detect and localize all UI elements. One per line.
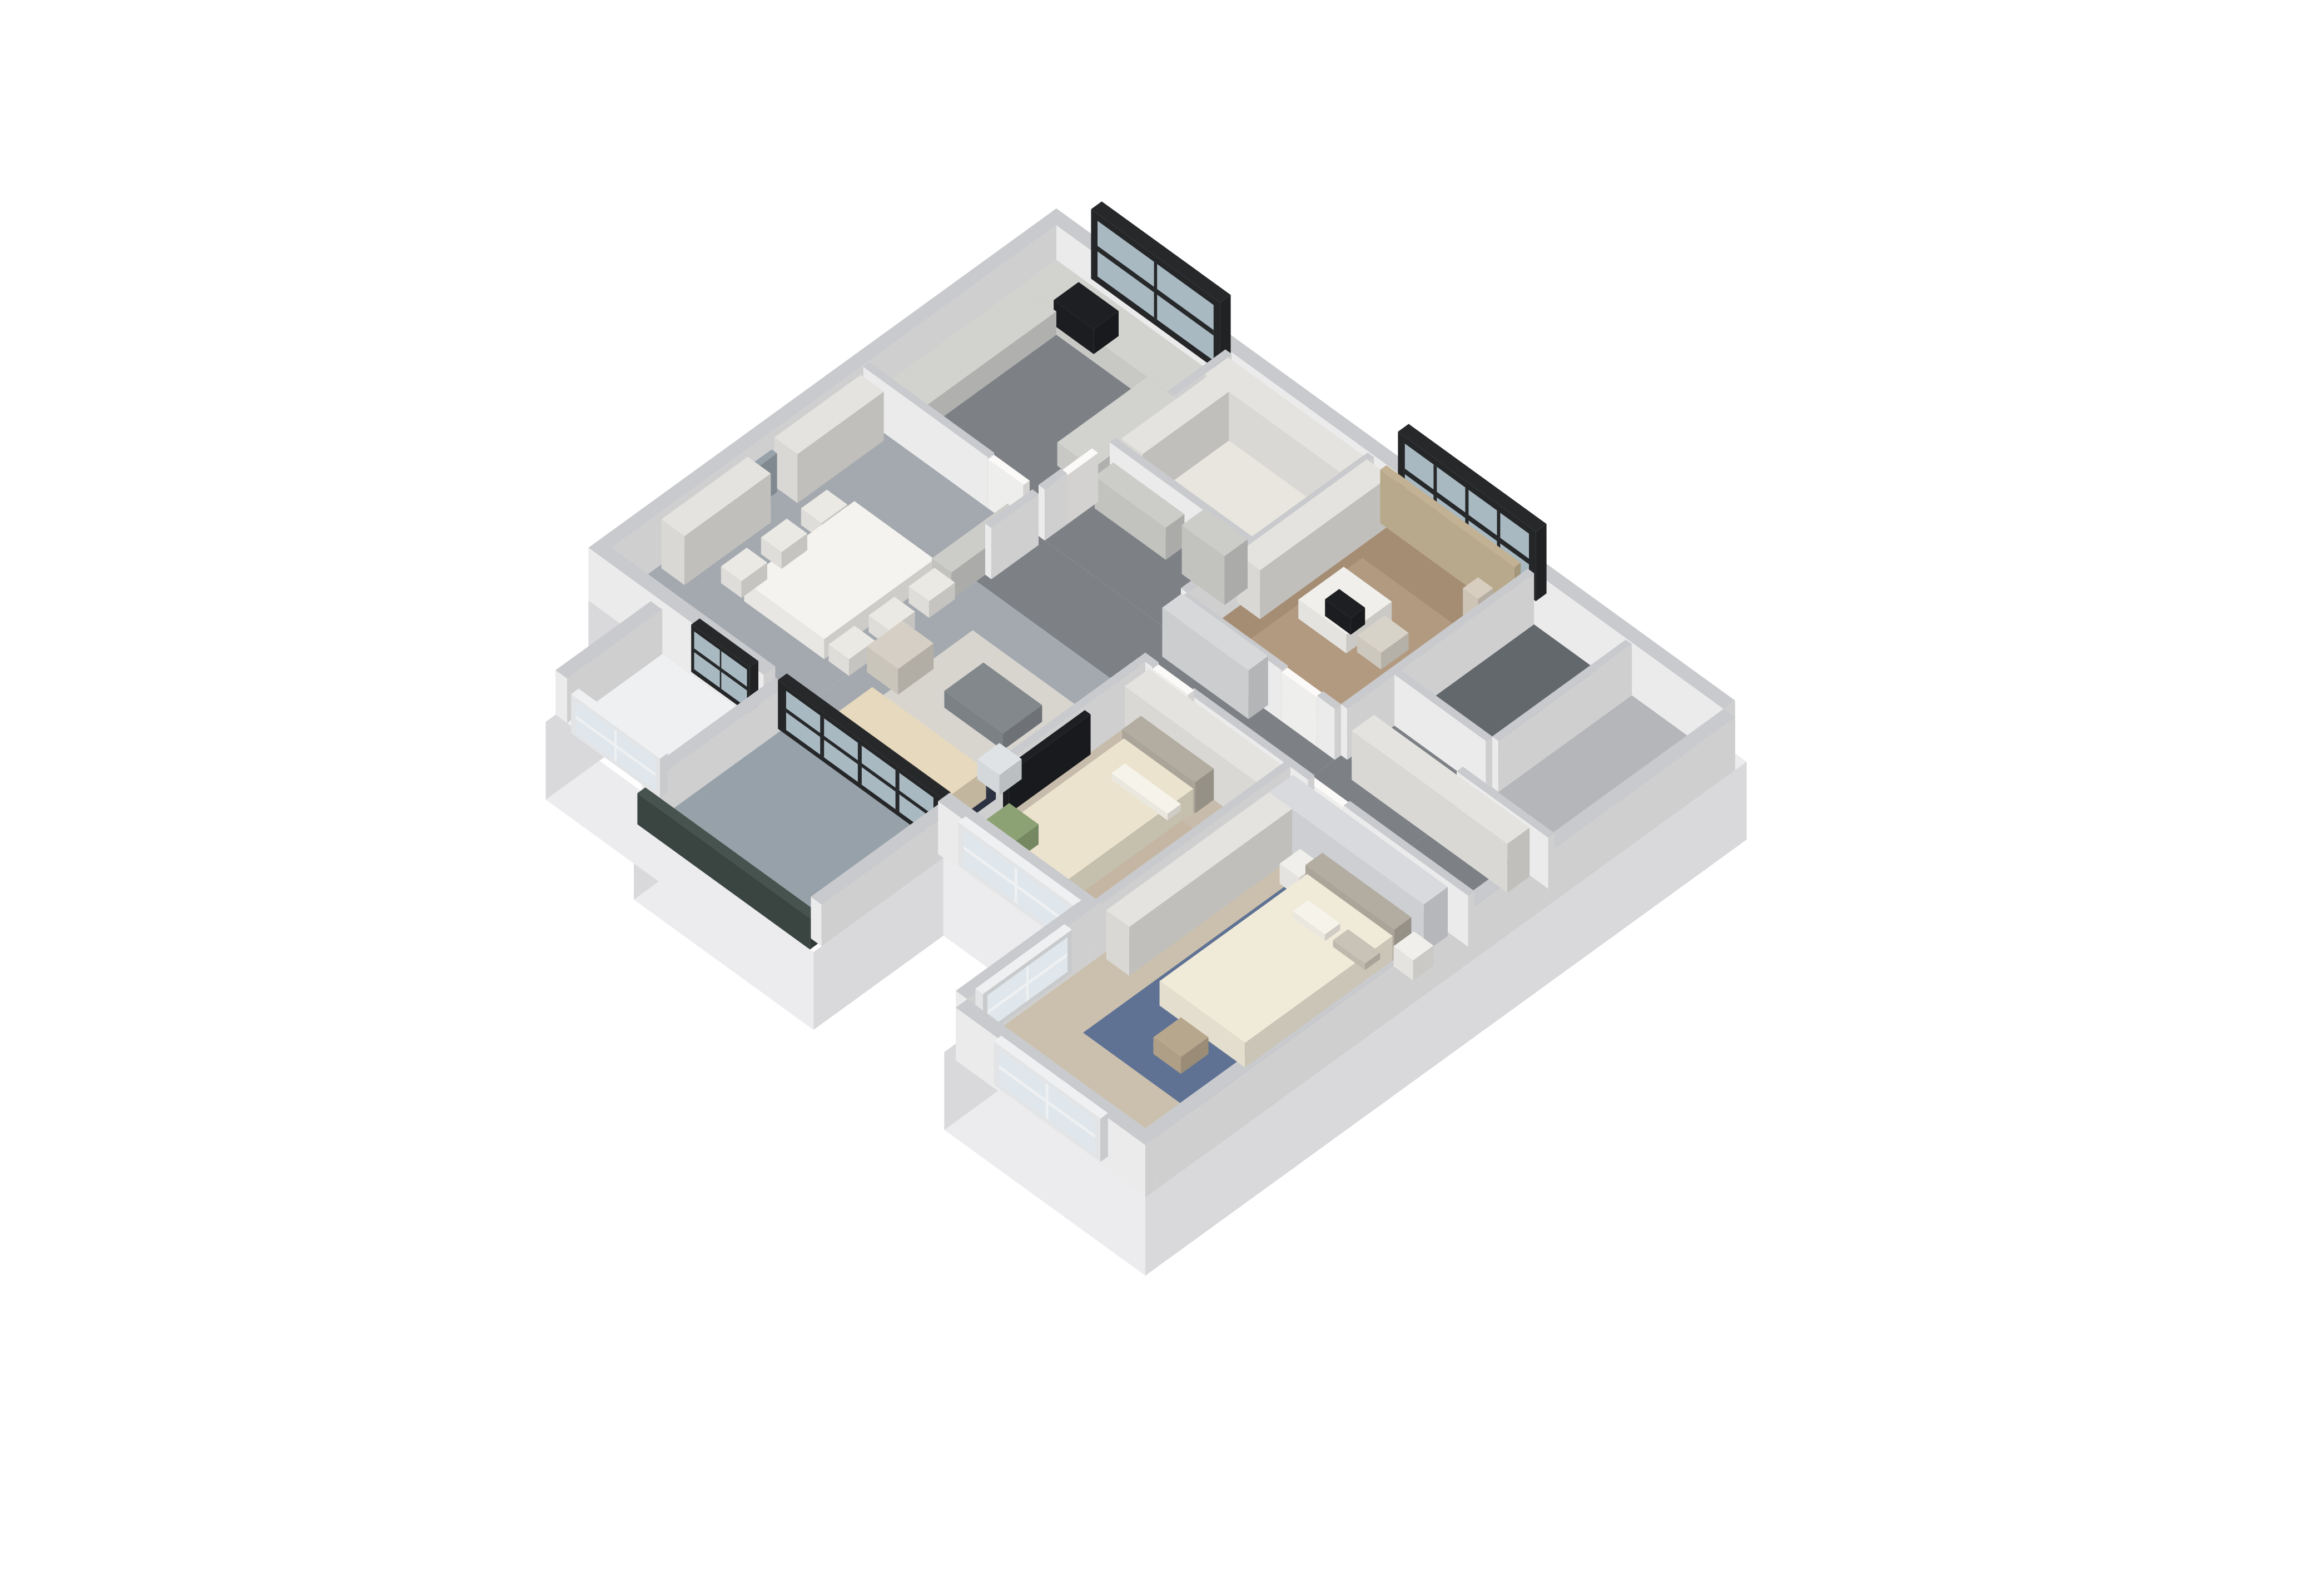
floorplan-svg <box>0 0 2324 1588</box>
int-wall-kitchen-e-b-side <box>1039 485 1045 540</box>
int-wall-bath-b-s-side <box>1548 833 1555 889</box>
int-wall-dining-pier-side <box>985 524 991 579</box>
int-wall-lobby-s-b-side <box>1468 891 1474 947</box>
int-wall-bath-div-side <box>1492 736 1498 792</box>
ext-wall-bed2-front-side <box>1089 902 1101 964</box>
ext-wall-balcony-r-side <box>811 897 821 946</box>
floorplan-3d-render <box>0 0 2324 1588</box>
ext-wall-alcove-w-side <box>555 670 567 723</box>
window-master-south-side <box>1100 1113 1108 1162</box>
window-study-side <box>1536 524 1546 601</box>
window-alcove-side <box>660 753 668 798</box>
ext-wall-master-front-side <box>1145 1137 1157 1198</box>
page-background <box>0 0 2324 1588</box>
int-wall-corridor-n-b-side <box>1335 704 1341 760</box>
int-wall-study-e-side <box>1341 704 1347 760</box>
int-wall-bath-a-s-side <box>1486 736 1492 792</box>
